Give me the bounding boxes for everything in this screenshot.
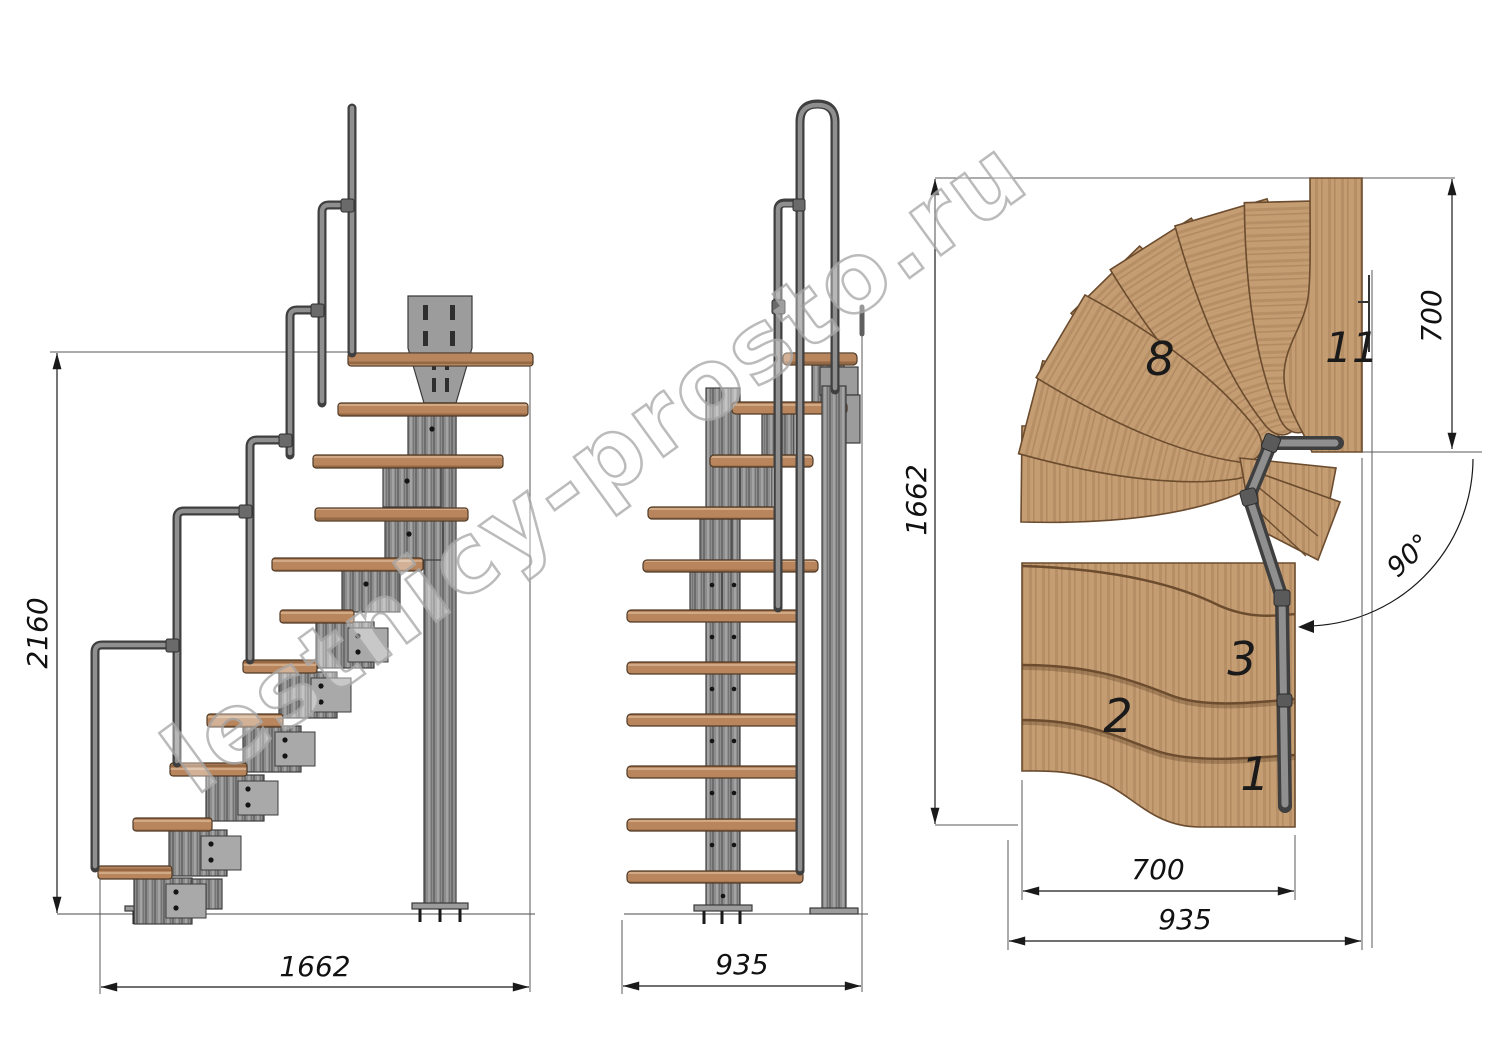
tread-number-2: 2 xyxy=(1103,689,1132,743)
front-column-base-flange xyxy=(694,905,752,911)
tread-number-8: 8 xyxy=(1145,332,1174,386)
tread-number-3: 3 xyxy=(1227,632,1256,686)
side-top-mount-plate xyxy=(408,296,472,403)
dimension-side-height: 2160 xyxy=(21,353,57,913)
dimension-label-plan-landing-depth: 700 xyxy=(1415,289,1448,342)
staircase-technical-drawing: 2160 1662 xyxy=(0,0,1500,1061)
dimension-side-run: 1662 xyxy=(101,950,529,987)
front-support-pole xyxy=(822,386,846,910)
front-pole-base-flange xyxy=(810,908,858,914)
front-column-anchor-bolts xyxy=(704,911,740,924)
plan-view: 1 2 3 8 11 1662 700 90° 700 xyxy=(900,178,1482,950)
dimension-label-plan-overall-width: 935 xyxy=(1158,903,1211,936)
dimension-label-side-run: 1662 xyxy=(279,950,350,983)
tread-number-11: 11 xyxy=(1325,323,1378,372)
dimension-label-side-height: 2160 xyxy=(21,597,54,668)
dimension-label-plan-angle: 90° xyxy=(1381,528,1437,583)
dimension-front-width: 935 xyxy=(623,948,861,986)
dimension-plan-landing-depth: 700 xyxy=(1415,179,1452,449)
side-column-anchor-bolts xyxy=(420,909,460,922)
drawing-canvas: 2160 1662 xyxy=(0,0,1500,1061)
dimension-label-plan-depth: 1662 xyxy=(900,464,933,535)
dimension-label-front-width: 935 xyxy=(715,948,768,981)
side-column-base-flange xyxy=(412,903,468,909)
dimension-label-plan-flight-width: 700 xyxy=(1131,853,1184,886)
tread-number-1: 1 xyxy=(1240,747,1269,801)
